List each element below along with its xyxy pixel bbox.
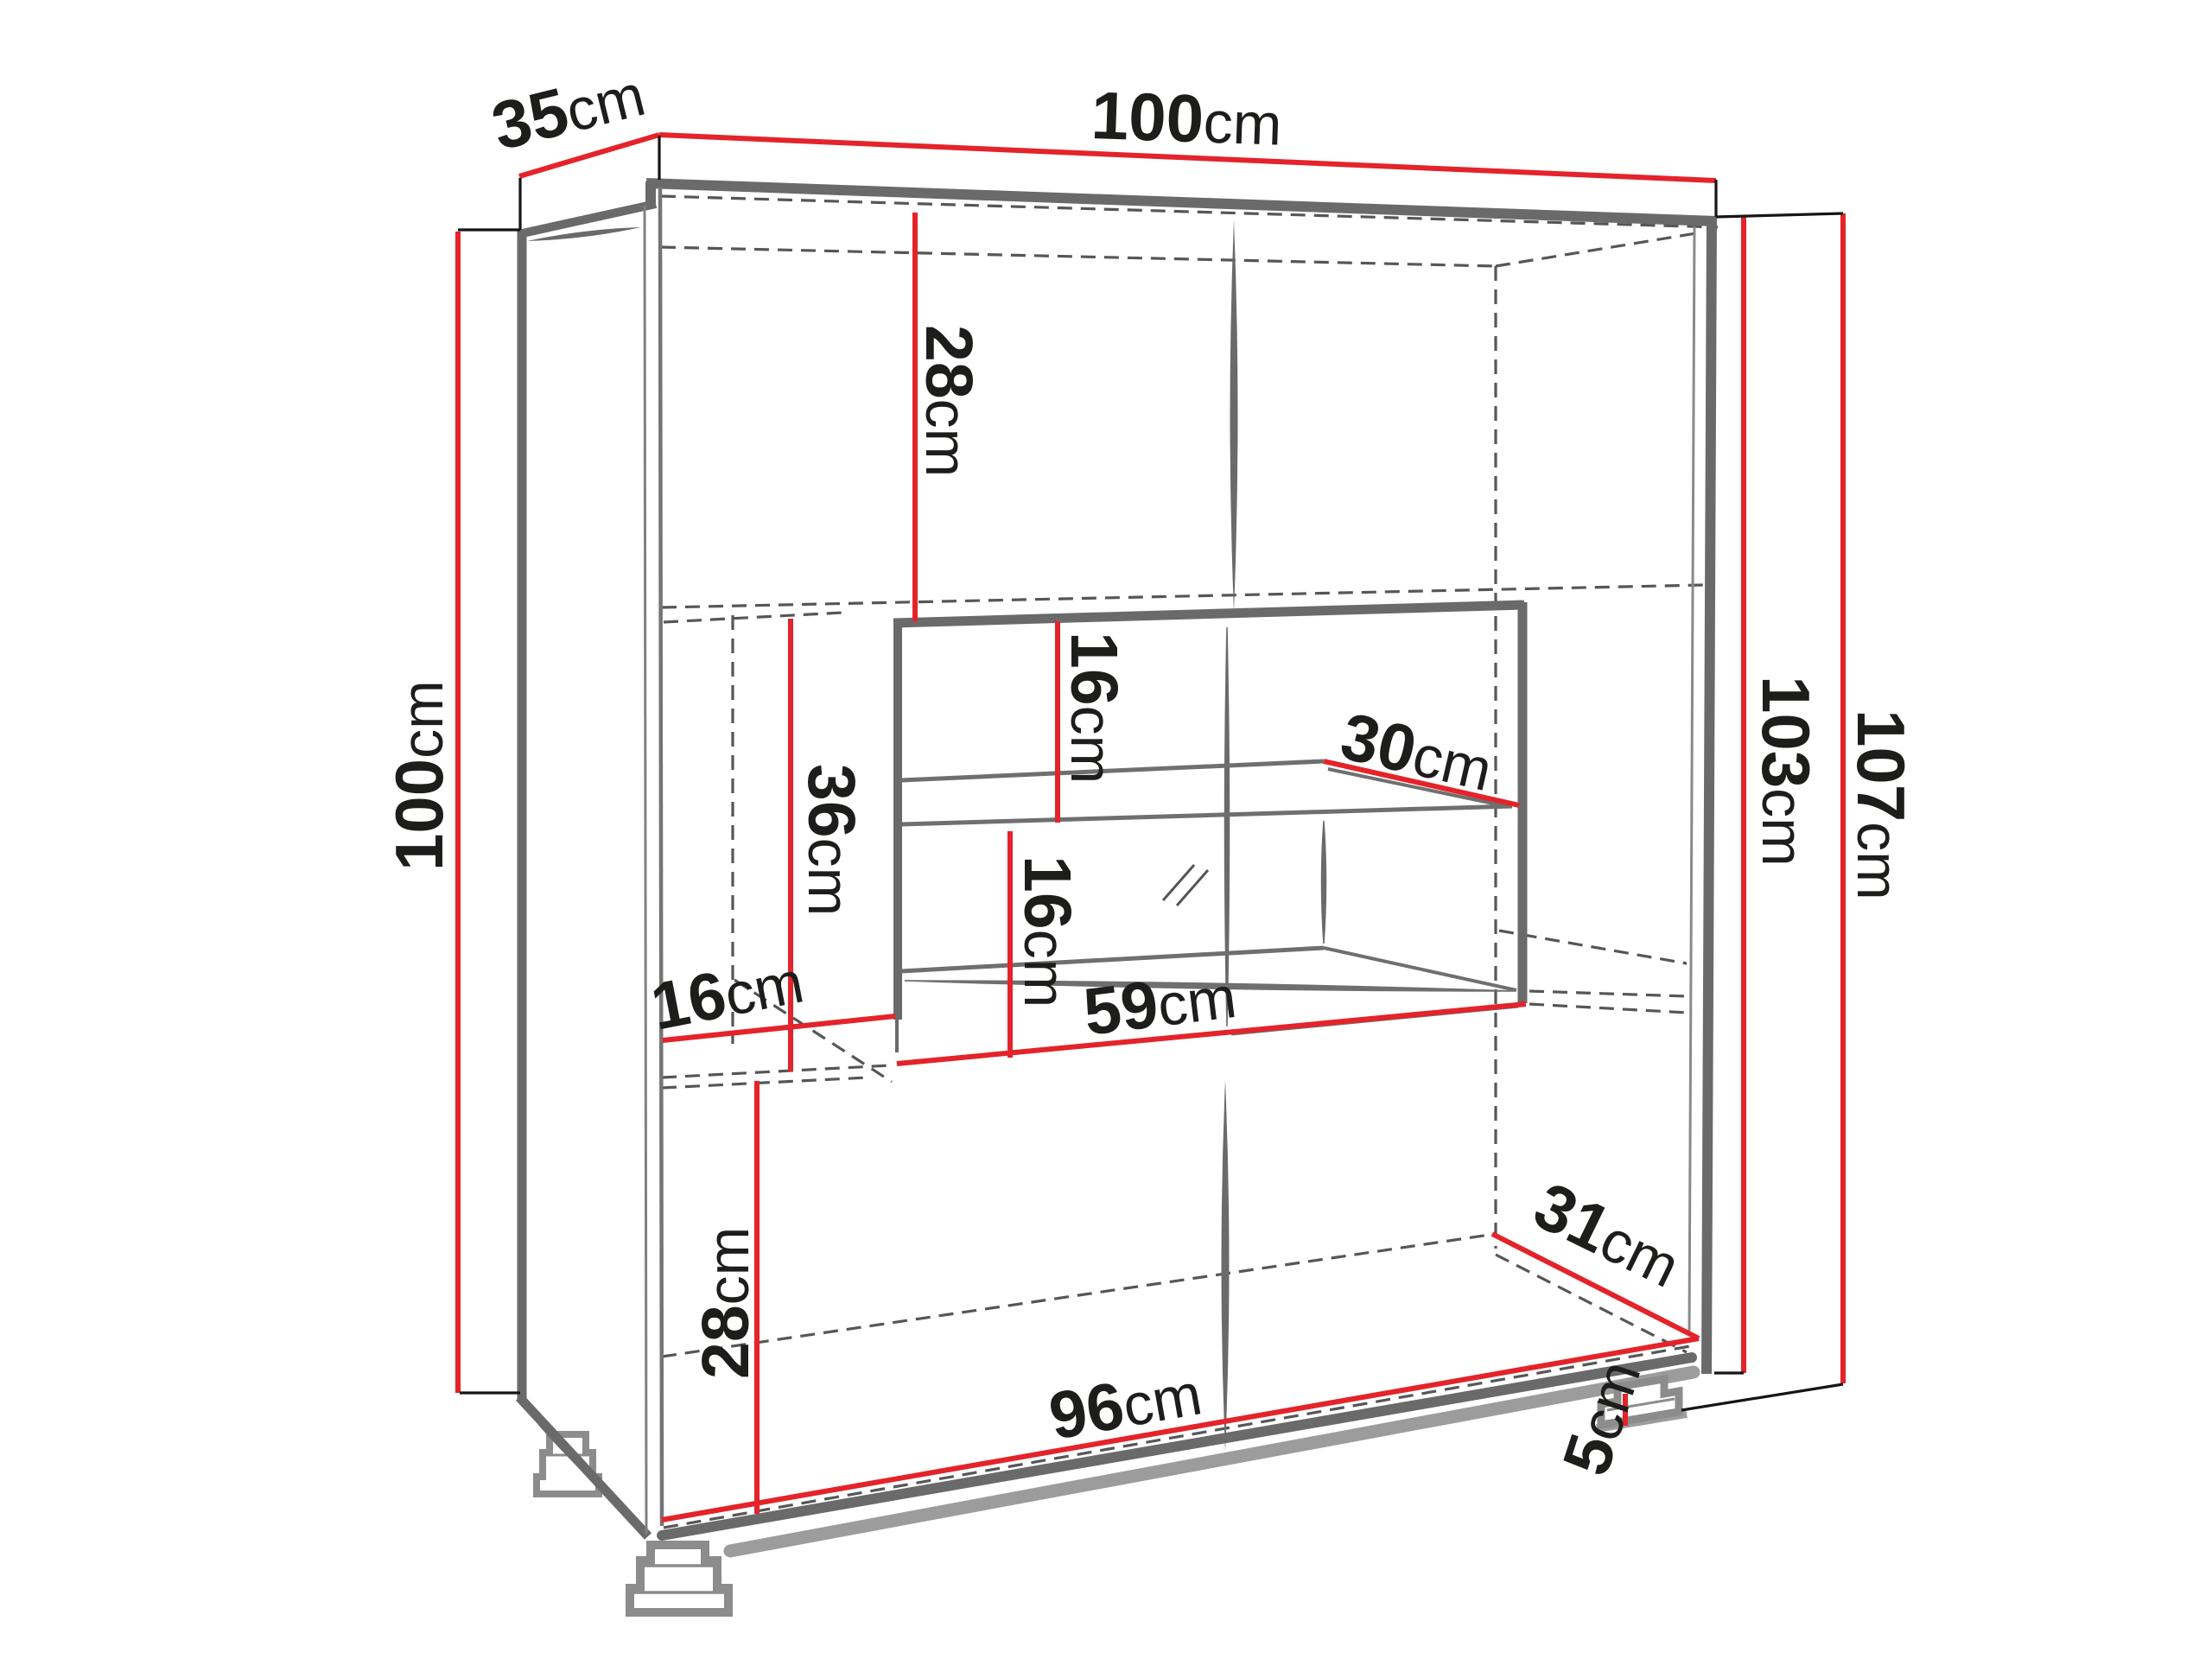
svg-text:16cm: 16cm xyxy=(1010,855,1084,1007)
svg-text:107cm: 107cm xyxy=(1843,709,1919,900)
svg-text:28cm: 28cm xyxy=(912,325,986,477)
svg-text:100cm: 100cm xyxy=(381,680,457,871)
svg-text:16cm: 16cm xyxy=(1057,632,1131,784)
svg-text:36cm: 36cm xyxy=(794,764,868,916)
svg-text:28cm: 28cm xyxy=(689,1227,763,1379)
svg-text:103cm: 103cm xyxy=(1748,676,1824,867)
